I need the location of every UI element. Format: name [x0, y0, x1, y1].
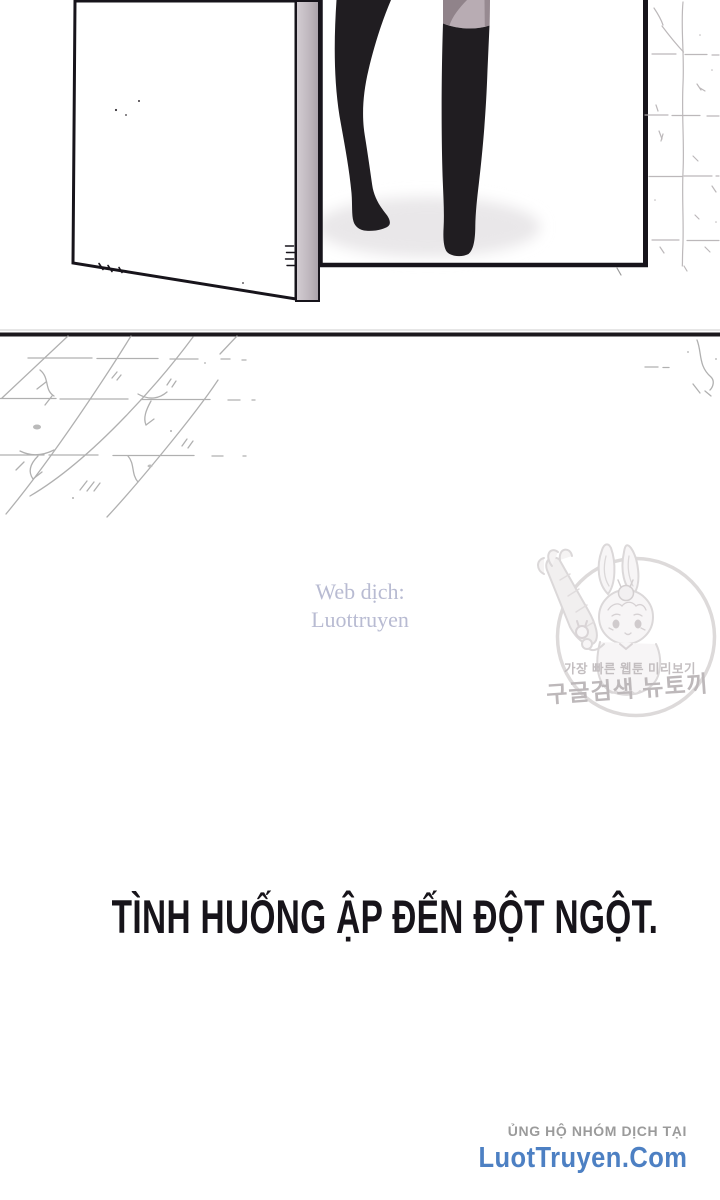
carrot-icon [546, 557, 597, 644]
door-edge [296, 1, 319, 301]
bunny-ear-icon [599, 544, 615, 594]
floor-tiles-sketch [0, 336, 717, 517]
floor-shadow [316, 197, 540, 257]
floor-line [0, 330, 720, 337]
caption: TÌNH HUỐNG ẬP ĐẾN ĐỘT NGỘT. [0, 888, 720, 946]
wall-bricks-sketch [645, 2, 719, 271]
comic-page[interactable]: Web dịch: Luottruyen [0, 0, 720, 1200]
newtoki-watermark: 가장 빠른 웹툰 미리보기 구글검색 뉴토끼 [530, 540, 720, 725]
support-credit-label: ỦNG HỘ NHÓM DỊCH TẠI [450, 1123, 687, 1140]
site-name-text: LuotTruyen.Com [478, 1143, 687, 1174]
caption-text: TÌNH HUỐNG ẬP ĐẾN ĐỘT NGỘT. [112, 888, 659, 946]
door-panel [73, 1, 319, 301]
panel-artwork [0, 0, 720, 530]
left-boot [335, 0, 391, 231]
right-thigh-shade-edge [485, 0, 491, 26]
support-credit: ỦNG HỘ NHÓM DỊCH TẠI LuotTruyen.Com [450, 1123, 687, 1174]
